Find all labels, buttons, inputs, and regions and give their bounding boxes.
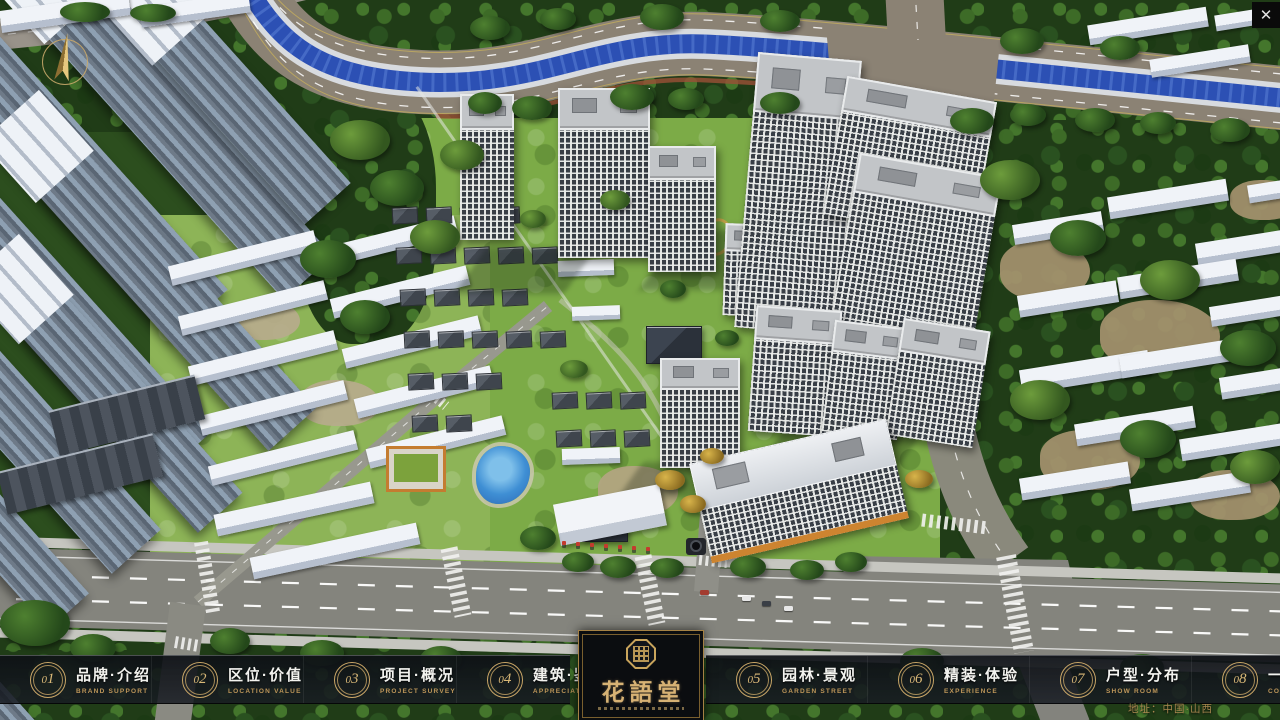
- courtyard-house: [438, 330, 465, 348]
- project-logo-subtitle: [598, 707, 685, 710]
- orange-trim-building: [386, 446, 446, 492]
- courtyard-house: [552, 391, 579, 409]
- car: [784, 606, 793, 611]
- seal-emblem-inner: [628, 641, 654, 667]
- project-logo-text: 花語堂: [579, 673, 703, 707]
- courtyard-house: [392, 206, 419, 224]
- tree: [1100, 36, 1140, 60]
- tree: [562, 552, 594, 572]
- menu-label-en: SHOW ROOM: [1106, 688, 1181, 695]
- tree: [340, 300, 390, 334]
- tree: [835, 552, 867, 572]
- tree: [300, 240, 356, 278]
- tower-building: [885, 318, 990, 448]
- tree: [440, 140, 484, 170]
- tree: [520, 210, 546, 228]
- tree: [468, 92, 502, 114]
- menu-label-en: GARDEN STREET: [782, 688, 857, 695]
- tree: [600, 556, 636, 578]
- tree: [1220, 330, 1276, 366]
- courtyard-house: [412, 414, 439, 432]
- courtyard-house: [476, 372, 503, 390]
- menu-item-location[interactable]: 02 区位·价值LOCATION VALUE: [152, 656, 304, 703]
- menu-label-zh: 精装·体验: [944, 664, 1019, 685]
- menu-number-badge: 06: [898, 662, 934, 698]
- flag: [604, 544, 608, 548]
- flag: [562, 541, 566, 545]
- tree: [1050, 220, 1106, 256]
- tree-gold: [905, 470, 933, 488]
- tree: [790, 560, 824, 580]
- courtyard-house: [506, 330, 533, 348]
- tower-roof: [660, 358, 740, 390]
- menu-label-zh: 区位·价值: [228, 664, 303, 685]
- menu-label-en: PROJECT SURVEY: [380, 688, 456, 695]
- amenity-building: [572, 305, 620, 321]
- tree: [0, 600, 70, 646]
- tree: [730, 556, 766, 578]
- menu-number: 02: [194, 671, 207, 688]
- courtyard-house: [540, 330, 567, 348]
- tree-gold: [700, 448, 724, 464]
- menu-bar-left: 01 品牌·介绍BRAND SUPPORT 02 区位·价值LOCATION V…: [0, 655, 570, 704]
- tree: [1140, 260, 1200, 300]
- menu-item-interior[interactable]: 06 精装·体验EXPERIENCE: [868, 656, 1030, 703]
- courtyard-house: [404, 330, 431, 348]
- entrance-gate: [686, 538, 706, 555]
- courtyard-house: [624, 429, 651, 447]
- menu-item-garden[interactable]: 05 园林·景观GARDEN STREET: [706, 656, 868, 703]
- tree: [610, 84, 654, 110]
- tree: [1010, 104, 1046, 126]
- menu-number-badge: 05: [736, 662, 772, 698]
- tree: [60, 2, 110, 22]
- app-window: ✕ 01 品牌·介绍BRAND SUPPORT 02 区位·价值LOCATION…: [0, 0, 1280, 720]
- menu-number: 01: [42, 671, 55, 688]
- tower-roof: [648, 146, 716, 180]
- tree: [600, 190, 630, 210]
- tower-building: [660, 358, 740, 468]
- courtyard-house: [446, 414, 473, 432]
- tree: [660, 280, 686, 298]
- tree: [668, 88, 704, 110]
- tree: [1010, 380, 1070, 420]
- menu-bar-right: 05 园林·景观GARDEN STREET 06 精装·体验EXPERIENCE…: [706, 655, 1280, 704]
- flag: [632, 546, 636, 550]
- close-icon: ✕: [1260, 6, 1273, 24]
- tree: [640, 4, 684, 30]
- tree: [560, 360, 588, 378]
- address-label: 地址：中国·山西: [1128, 701, 1213, 716]
- courtyard-house: [620, 391, 647, 409]
- flag: [576, 542, 580, 546]
- tree: [210, 628, 250, 654]
- tree: [1210, 118, 1250, 142]
- menu-label-en: EXPERIENCE: [944, 688, 1019, 695]
- menu-number: 08: [1234, 671, 1247, 688]
- tree: [715, 330, 739, 346]
- flag: [646, 547, 650, 551]
- menu-label-en: BRAND SUPPORT: [76, 688, 151, 695]
- menu-number-badge: 04: [487, 662, 523, 698]
- tree: [1140, 112, 1176, 134]
- tree: [330, 120, 390, 160]
- menu-number-badge: 01: [30, 662, 66, 698]
- tree: [760, 92, 800, 114]
- menu-label-zh: 一房·一景: [1268, 664, 1280, 685]
- close-button[interactable]: ✕: [1252, 2, 1280, 28]
- tower-roof: [754, 305, 842, 345]
- menu-number: 05: [748, 671, 761, 688]
- amenity-building: [562, 447, 621, 465]
- seal-emblem-icon: [626, 639, 656, 669]
- menu-item-brand[interactable]: 01 品牌·介绍BRAND SUPPORT: [0, 656, 152, 703]
- tree: [520, 526, 556, 550]
- flag: [590, 543, 594, 547]
- courtyard-house: [442, 372, 469, 390]
- tree: [1075, 108, 1115, 132]
- menu-label-zh: 园林·景观: [782, 664, 857, 685]
- menu-label-zh: 项目·概况: [380, 664, 456, 685]
- menu-number: 04: [498, 671, 511, 688]
- project-logo-plate: 花語堂: [578, 630, 704, 720]
- compass-north-icon: [40, 32, 90, 90]
- menu-item-project[interactable]: 03 项目·概况PROJECT SURVEY: [304, 656, 457, 703]
- tree: [950, 108, 994, 134]
- menu-number: 07: [1072, 671, 1085, 688]
- car: [762, 601, 771, 606]
- tree: [370, 170, 424, 206]
- menu-label-en: LOCATION VALUE: [228, 688, 303, 695]
- courtyard-house: [472, 330, 499, 348]
- flag: [618, 545, 622, 549]
- tree: [1230, 450, 1280, 484]
- tree-gold: [655, 470, 685, 490]
- menu-number-badge: 07: [1060, 662, 1096, 698]
- menu-item-views[interactable]: 08 一房·一景COMMUNITY: [1192, 656, 1280, 703]
- courtyard-house: [586, 391, 613, 409]
- menu-number-badge: 02: [182, 662, 218, 698]
- courtyard-house: [590, 429, 617, 447]
- menu-item-floorplan[interactable]: 07 户型·分布SHOW ROOM: [1030, 656, 1192, 703]
- tree: [760, 10, 800, 32]
- tree-gold: [680, 495, 706, 513]
- menu-number-badge: 03: [334, 662, 370, 698]
- car: [700, 590, 709, 595]
- tree: [1120, 420, 1176, 458]
- tree: [980, 160, 1040, 200]
- tower-building: [558, 88, 650, 258]
- tree: [540, 8, 576, 30]
- courtyard-house: [556, 429, 583, 447]
- menu-label-en: COMMUNITY: [1268, 688, 1280, 695]
- tree: [512, 96, 552, 120]
- courtyard-house: [400, 288, 427, 306]
- tree: [470, 16, 510, 40]
- tree: [650, 558, 684, 578]
- menu-number-badge: 08: [1222, 662, 1258, 698]
- menu-label-zh: 品牌·介绍: [76, 664, 151, 685]
- tree: [130, 4, 176, 22]
- menu-number: 06: [910, 671, 923, 688]
- car: [742, 596, 751, 601]
- menu-number: 03: [346, 671, 359, 688]
- tower-building: [830, 153, 1002, 347]
- tower-building: [648, 146, 716, 272]
- tree: [410, 220, 460, 254]
- tree: [1000, 28, 1044, 54]
- courtyard-house: [408, 372, 435, 390]
- menu-label-zh: 户型·分布: [1106, 664, 1181, 685]
